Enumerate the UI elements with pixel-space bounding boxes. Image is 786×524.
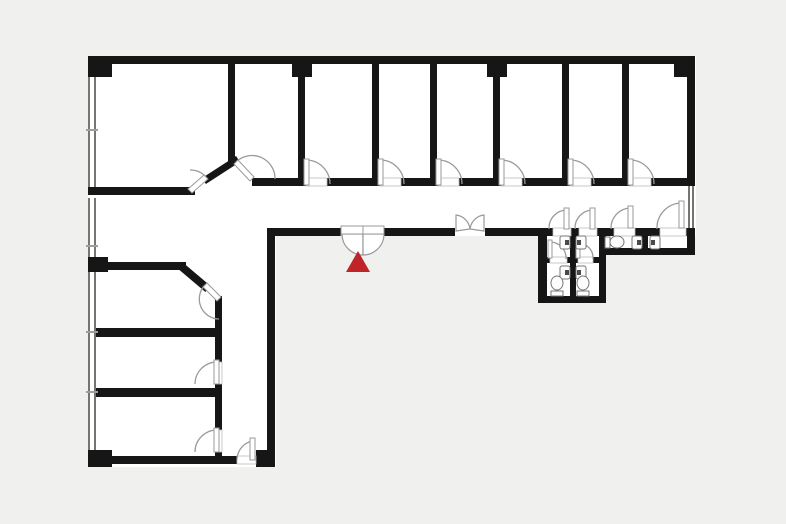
door-leaf	[590, 208, 595, 229]
wc-wall	[599, 248, 695, 255]
door-opening	[660, 228, 686, 236]
exterior-wall-bottom	[88, 456, 222, 464]
door-leaf	[499, 159, 504, 185]
corridor-wall	[522, 178, 570, 186]
toilet-tank	[605, 237, 610, 248]
toilet-tank	[577, 291, 589, 296]
sink-tap	[577, 240, 581, 245]
wall-pillar	[256, 450, 275, 467]
door-leaf	[214, 360, 219, 384]
interior-wall	[96, 388, 222, 397]
double-door-leaf	[363, 226, 384, 234]
interior-wall	[267, 228, 275, 450]
exterior-wall-bottom	[222, 456, 237, 464]
floor-plan	[0, 0, 786, 524]
corridor-wall	[597, 228, 614, 236]
exterior-wall-right	[687, 56, 695, 186]
door-leaf	[304, 159, 309, 185]
wall-pillar	[88, 56, 112, 77]
corridor-wall	[686, 228, 695, 236]
corridor-wall	[327, 178, 380, 186]
sink-tap	[565, 240, 569, 245]
wc-wall	[642, 236, 648, 248]
sink-tap	[577, 270, 581, 275]
corridor-wall	[651, 178, 694, 186]
door-leaf	[628, 206, 633, 228]
toilet-bowl	[610, 236, 624, 248]
corridor-wall	[88, 187, 195, 195]
door-leaf	[628, 159, 633, 185]
double-door-leaf	[341, 226, 363, 234]
door-opening	[550, 257, 567, 263]
corridor-wall	[591, 178, 630, 186]
corridor-wall	[459, 178, 501, 186]
toilet-tank	[551, 291, 563, 296]
sink-tap	[651, 240, 655, 245]
toilet-bowl	[551, 276, 563, 290]
door-leaf	[436, 159, 441, 185]
wc-wall	[538, 296, 606, 303]
toilet-bowl	[577, 276, 589, 290]
corridor-wall	[571, 228, 579, 236]
floor-plan-svg	[0, 0, 786, 524]
door-leaf	[214, 428, 219, 452]
interior-wall	[96, 262, 186, 270]
corridor-wall	[252, 178, 306, 186]
exterior-wall-top	[90, 56, 694, 64]
wc-wall	[570, 236, 576, 296]
corridor-wall	[267, 228, 341, 236]
corridor-wall	[401, 178, 438, 186]
sink-tap	[637, 240, 641, 245]
interior-wall	[228, 64, 235, 163]
corridor-wall	[384, 228, 455, 236]
door-leaf	[564, 208, 569, 229]
door-leaf	[548, 240, 552, 258]
wc-wall	[538, 228, 547, 303]
door-leaf	[378, 159, 383, 185]
interior-wall	[96, 328, 222, 337]
door-leaf	[250, 438, 255, 460]
floor-area	[88, 56, 696, 236]
door-leaf	[568, 159, 573, 185]
door-leaf	[679, 201, 684, 228]
sink-tap	[565, 270, 569, 275]
corridor-wall	[635, 228, 660, 236]
door-opening	[614, 228, 635, 236]
